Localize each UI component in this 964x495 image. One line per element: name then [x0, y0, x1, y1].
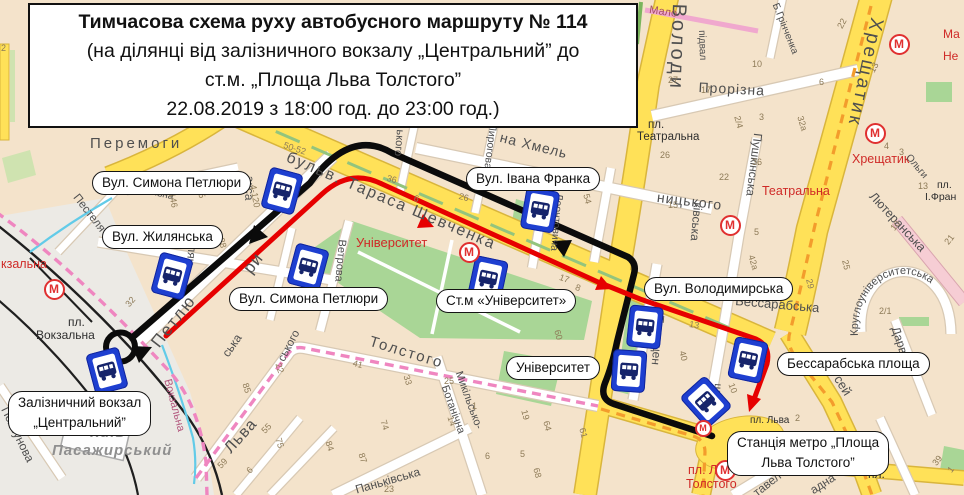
- callout-line: „Центральний”: [18, 413, 141, 433]
- callout-label: Вул. Володимирська: [644, 277, 793, 301]
- callout-line: Льва Толстого”: [737, 453, 879, 473]
- callout-line: Станція метро „Площа: [737, 433, 879, 453]
- map-title-line-1: Тимчасова схема руху автобусного маршрут…: [30, 8, 636, 37]
- map-title-line-2: (на ділянці від залізничного вокзалу „Це…: [30, 37, 636, 66]
- callout-label: Ст.м «Університет»: [436, 289, 576, 313]
- callout-label: Вул. Жилянська: [102, 225, 223, 249]
- callout-line: Університет: [516, 358, 590, 378]
- callout-label: Вул. Симона Петлюри: [229, 287, 388, 311]
- callout-line: Вул. Симона Петлюри: [239, 289, 378, 309]
- callout-line: Вул. Симона Петлюри: [102, 173, 241, 193]
- callout-label: Університет: [506, 356, 600, 380]
- callout-line: Залізничний вокзал: [18, 393, 141, 413]
- callout-label: Вул. Івана Франка: [466, 167, 600, 191]
- callout-label: Залізничний вокзал„Центральний”: [8, 391, 151, 436]
- callout-line: Вул. Івана Франка: [476, 169, 590, 189]
- map-title-line-4: 22.08.2019 з 18:00 год. до 23:00 год.): [30, 95, 636, 124]
- callout-label: Вул. Симона Петлюри: [92, 171, 251, 195]
- callout-line: Ст.м «Університет»: [446, 291, 566, 311]
- callout-line: Вул. Жилянська: [112, 227, 213, 247]
- callout-label: Бессарабська площа: [777, 352, 930, 376]
- callout-line: Бессарабська площа: [787, 354, 920, 374]
- callout-line: Вул. Володимирська: [654, 279, 783, 299]
- map-title-box: Тимчасова схема руху автобусного маршрут…: [28, 3, 638, 128]
- callout-label: Станція метро „ПлощаЛьва Толстого”: [727, 431, 889, 476]
- map-title-line-3: ст.м. „Площа Льва Толстого”: [30, 66, 636, 95]
- bus-route-map: Круглоуніверситетська Перемогибульв. Тар…: [0, 0, 964, 495]
